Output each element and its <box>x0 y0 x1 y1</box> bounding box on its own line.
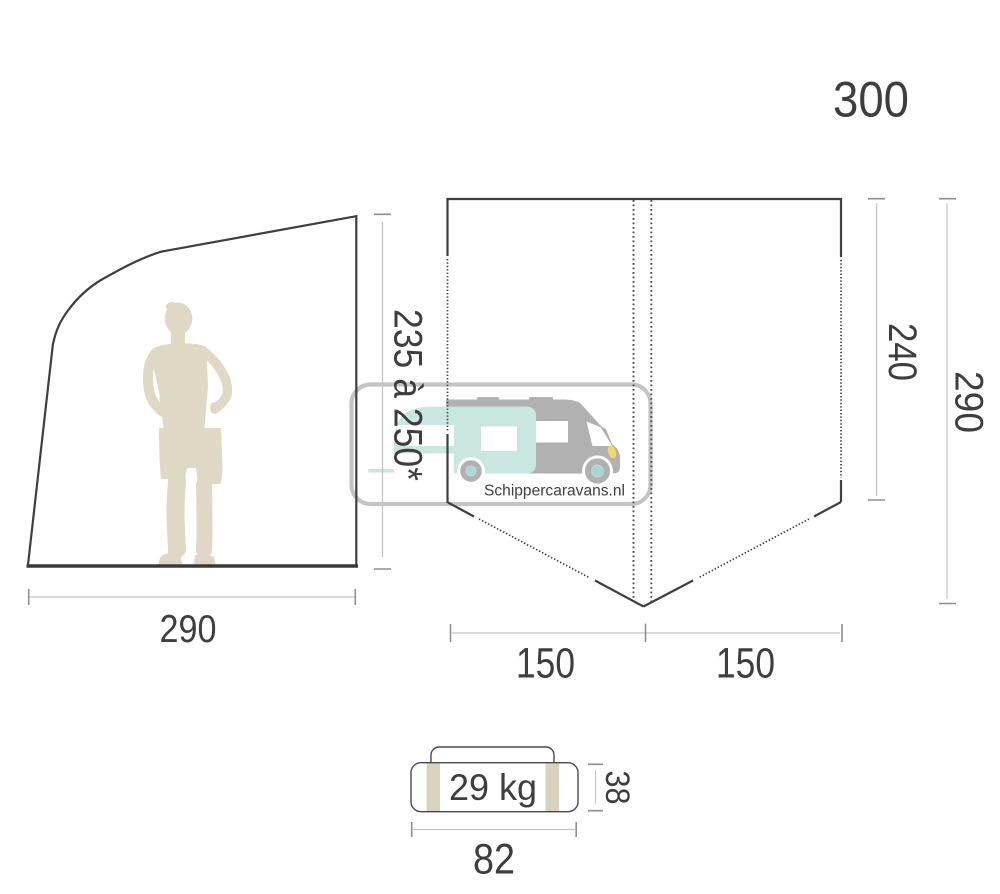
svg-text:Schippercaravans.nl: Schippercaravans.nl <box>484 483 625 500</box>
svg-text:290: 290 <box>160 608 217 651</box>
svg-text:235 à 250*: 235 à 250* <box>386 309 430 481</box>
svg-text:300: 300 <box>833 72 909 128</box>
svg-text:150: 150 <box>716 640 775 688</box>
svg-text:29 kg: 29 kg <box>449 767 537 808</box>
svg-text:38: 38 <box>598 771 636 805</box>
svg-text:82: 82 <box>473 836 515 884</box>
svg-text:240: 240 <box>880 323 924 381</box>
svg-text:290: 290 <box>947 371 991 433</box>
svg-text:150: 150 <box>516 640 575 688</box>
